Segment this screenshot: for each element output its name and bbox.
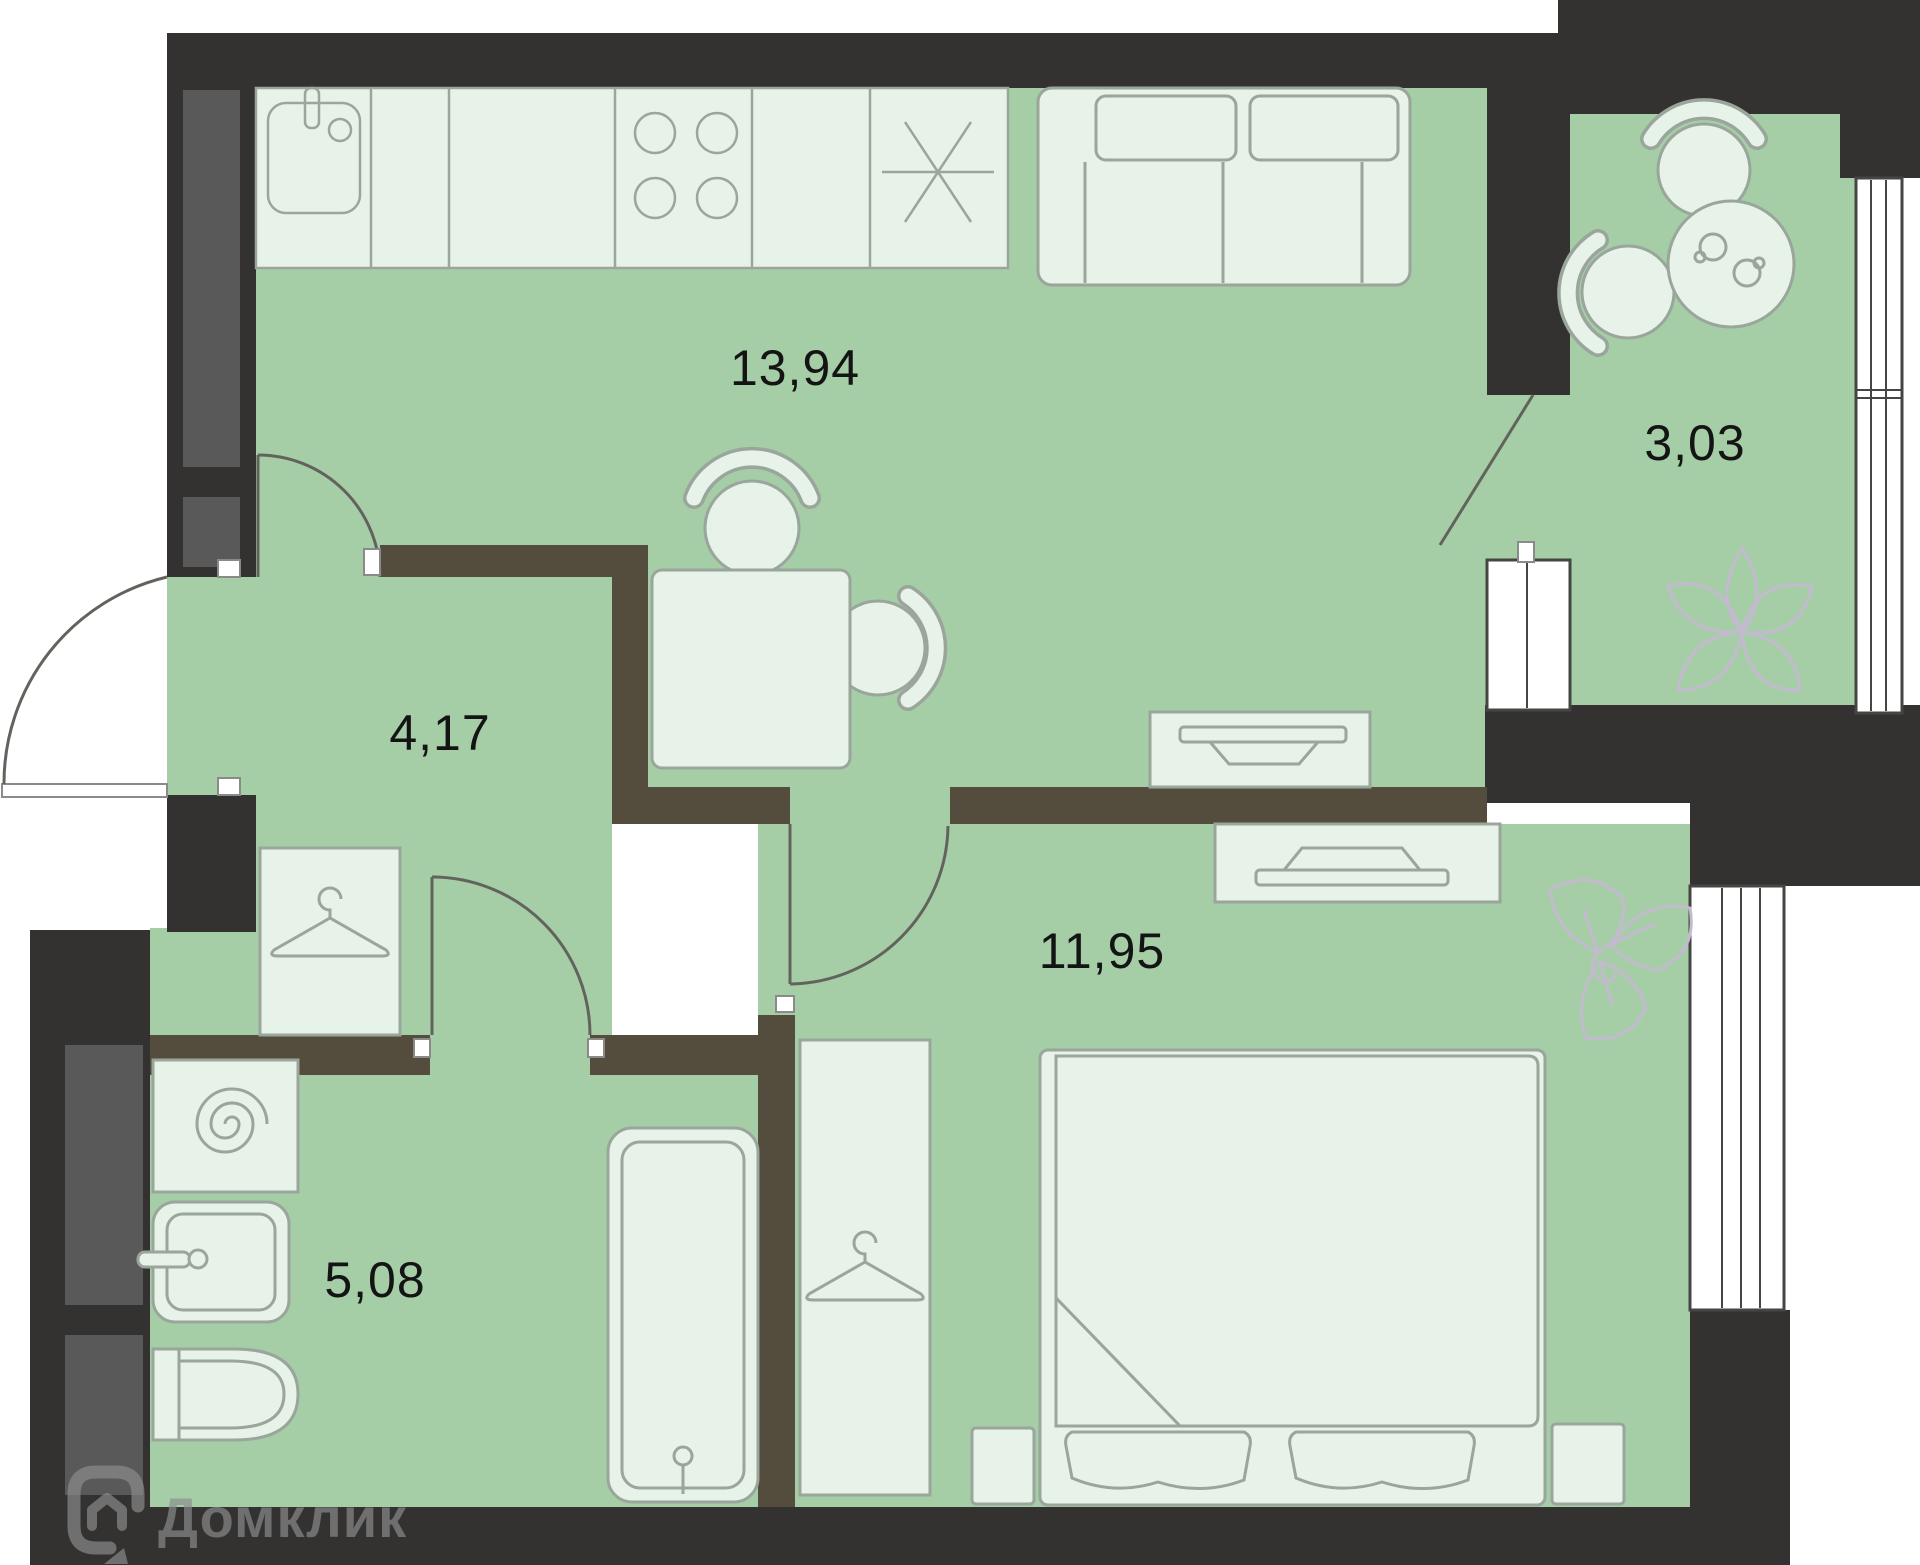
wardrobe-hallway — [260, 848, 400, 1035]
entrance-door-leaf — [2, 784, 167, 797]
floor-balcony-doorway — [1487, 395, 1570, 560]
wall-top — [167, 33, 1560, 88]
area-label-hallway: 4,17 — [389, 705, 490, 761]
floorplan-svg: 13,94 4,17 3,03 11,95 5,08 Домклик — [0, 0, 1920, 1565]
floor-hallway-lower — [150, 928, 256, 1035]
wall-balcony-bottom-right — [1690, 705, 1920, 886]
area-label-kitchen-living: 13,94 — [730, 340, 860, 396]
floor-bedroom-doorway — [790, 787, 950, 824]
tv-stand-living — [1150, 712, 1370, 787]
dining-table — [652, 570, 850, 768]
jamb-bath-door-left — [414, 1039, 430, 1057]
jamb-entrance-top — [218, 560, 240, 577]
wall-bath-top-right — [590, 1035, 758, 1075]
watermark-brand-text: Домклик — [158, 1486, 407, 1549]
bed-pillow-1 — [1066, 1432, 1251, 1489]
wall-hall-living — [380, 545, 648, 577]
entrance-door-arc — [4, 577, 167, 784]
jamb-hall-door — [364, 549, 380, 575]
wall-divider-right — [950, 787, 1487, 824]
sofa-cushion-1 — [1096, 96, 1236, 160]
wall-hall-vertical — [612, 577, 648, 787]
jamb-entrance-bottom — [218, 778, 240, 795]
floor-hall-living-doorway — [256, 545, 380, 577]
chair-seat — [705, 481, 799, 575]
balcony-table — [1668, 201, 1794, 327]
jamb-bath-door-right — [588, 1039, 604, 1057]
bathroom-faucet — [138, 1252, 190, 1267]
bed-pillow-2 — [1290, 1432, 1475, 1489]
floorplan-canvas: 13,94 4,17 3,03 11,95 5,08 Домклик — [0, 0, 1920, 1565]
chair-seat — [1582, 246, 1674, 338]
nightstand-left — [972, 1428, 1034, 1504]
wall-bedroom-right-corner — [1690, 1310, 1790, 1507]
nightstand-right — [1552, 1424, 1624, 1504]
hallway-area — [260, 848, 400, 1035]
wall-divider-left — [612, 787, 790, 824]
window-living-balcony — [1487, 560, 1570, 710]
floor-bath-doorway — [430, 1035, 590, 1075]
area-label-balcony: 3,03 — [1644, 415, 1745, 471]
area-label-bathroom: 5,08 — [324, 1252, 425, 1308]
wall-balcony-top — [1558, 0, 1860, 114]
tv-stand-bedroom — [1215, 824, 1500, 902]
wall-balcony-partition — [1487, 88, 1570, 395]
window-bedroom — [1690, 886, 1784, 1310]
jamb-balcony-window — [1518, 542, 1534, 562]
kitchen-area — [256, 88, 1008, 268]
wardrobe-bedroom — [800, 1040, 930, 1495]
shaft-panel-upper-2 — [183, 497, 240, 567]
wall-entry-stub — [167, 795, 256, 932]
wall-bath-right — [758, 1015, 795, 1507]
shaft-panel-lower-1 — [65, 1045, 143, 1305]
kitchen-counter — [256, 88, 1008, 268]
window-balcony-right — [1856, 178, 1902, 713]
bathroom-faucet-knob — [189, 1250, 207, 1268]
area-label-bedroom: 11,95 — [1039, 923, 1165, 979]
jamb-bedroom-door — [776, 996, 794, 1012]
shaft-panel-upper-1 — [183, 90, 240, 467]
washing-machine — [153, 1060, 298, 1192]
toilet-tank — [153, 1349, 179, 1440]
wall-balcony-top-right — [1840, 0, 1920, 178]
sofa-cushion-2 — [1250, 96, 1398, 160]
